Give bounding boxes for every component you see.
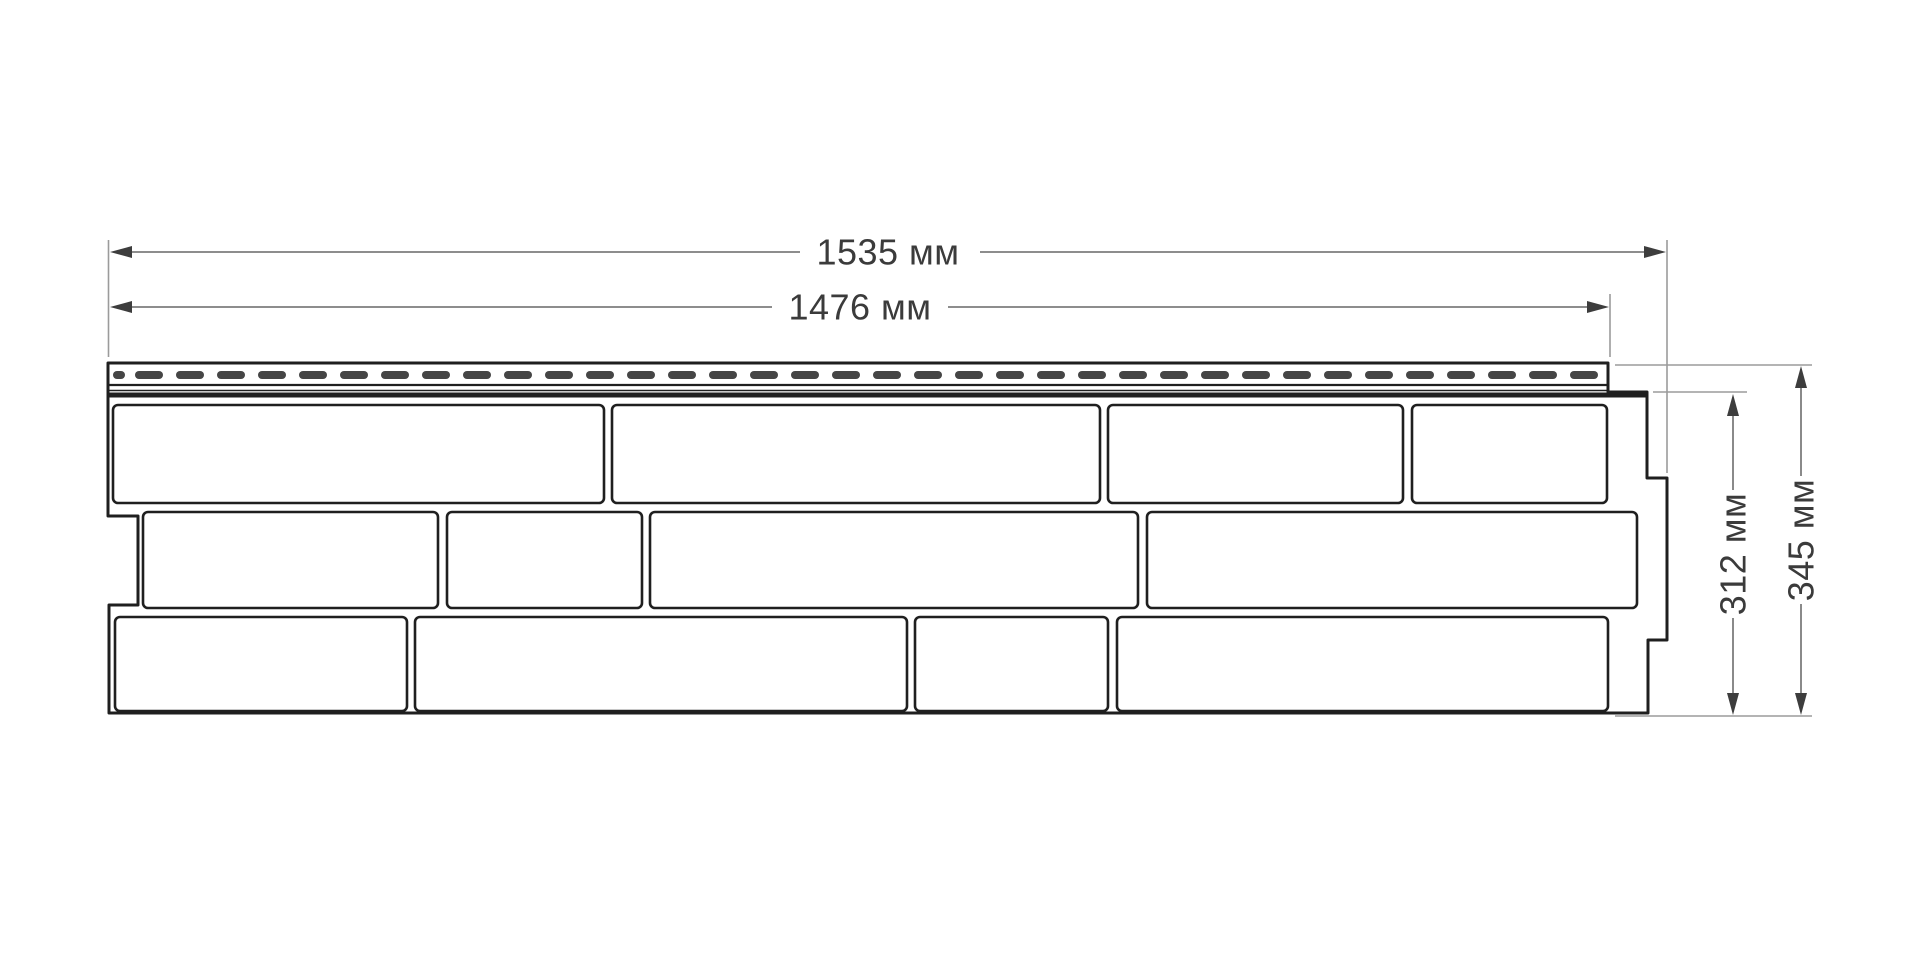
nail-slot xyxy=(1201,371,1229,379)
brick-r1-1 xyxy=(113,405,604,503)
brick-r1-4 xyxy=(1412,405,1607,503)
arrowhead-right xyxy=(1587,301,1609,313)
brick-r3-1 xyxy=(115,617,407,711)
arrowhead-left xyxy=(110,246,132,258)
nail-slot xyxy=(914,371,942,379)
nail-slot xyxy=(381,371,409,379)
nail-slot xyxy=(135,371,163,379)
facade-panel-drawing: 1535 мм 1476 мм 312 мм 345 мм xyxy=(0,0,1920,960)
dimension-total-width: 1535 мм xyxy=(110,232,1666,273)
dimension-label-useful-height: 312 мм xyxy=(1713,493,1754,616)
dimension-total-height: 345 мм xyxy=(1781,366,1822,715)
nail-slot xyxy=(1447,371,1475,379)
nail-slot xyxy=(1324,371,1352,379)
nail-slot xyxy=(668,371,696,379)
nail-slot xyxy=(1119,371,1147,379)
arrowhead-right xyxy=(1644,246,1666,258)
nail-slot xyxy=(955,371,983,379)
nail-slot xyxy=(422,371,450,379)
brick-r2-2 xyxy=(447,512,642,608)
brick-r3-3 xyxy=(915,617,1108,711)
brick-r2-3 xyxy=(650,512,1138,608)
nail-slot xyxy=(873,371,901,379)
nail-slot xyxy=(176,371,204,379)
nail-slot xyxy=(1570,371,1598,379)
nail-slot xyxy=(1242,371,1270,379)
nail-slot xyxy=(217,371,245,379)
nail-slot xyxy=(545,371,573,379)
nail-slot xyxy=(463,371,491,379)
dimension-label-total-width: 1535 мм xyxy=(816,232,959,273)
panel xyxy=(108,363,1667,713)
dimension-label-useful-width: 1476 мм xyxy=(788,287,931,328)
nail-slot xyxy=(791,371,819,379)
nail-slot xyxy=(832,371,860,379)
panel-top-shelf-band xyxy=(108,393,1647,398)
nail-slot xyxy=(1365,371,1393,379)
nail-slot xyxy=(1283,371,1311,379)
arrowhead-down xyxy=(1795,693,1807,715)
dimension-label-total-height: 345 мм xyxy=(1781,479,1822,602)
brick-r3-2 xyxy=(415,617,907,711)
nail-slot xyxy=(113,371,125,379)
nail-slot xyxy=(709,371,737,379)
brick-row-3 xyxy=(115,617,1608,711)
nail-slot xyxy=(340,371,368,379)
nail-slot xyxy=(1529,371,1557,379)
brick-r1-2 xyxy=(612,405,1100,503)
nail-slot xyxy=(750,371,778,379)
nail-slot xyxy=(996,371,1024,379)
arrowhead-up xyxy=(1795,366,1807,388)
brick-row-2 xyxy=(143,512,1637,608)
brick-r1-3 xyxy=(1108,405,1403,503)
nail-slot xyxy=(586,371,614,379)
arrowhead-left xyxy=(110,301,132,313)
brick-row-1 xyxy=(113,405,1607,503)
dimension-useful-height: 312 мм xyxy=(1713,394,1754,715)
nail-slot xyxy=(299,371,327,379)
brick-r2-4 xyxy=(1147,512,1637,608)
nail-slot xyxy=(1078,371,1106,379)
nail-slot xyxy=(1488,371,1516,379)
nail-slot xyxy=(1160,371,1188,379)
brick-r3-4 xyxy=(1117,617,1608,711)
nail-slot xyxy=(1406,371,1434,379)
nail-slot xyxy=(504,371,532,379)
nail-slot xyxy=(627,371,655,379)
arrowhead-up xyxy=(1727,394,1739,416)
arrowhead-down xyxy=(1727,693,1739,715)
drawing-canvas: 1535 мм 1476 мм 312 мм 345 мм xyxy=(0,0,1920,960)
nail-slot xyxy=(258,371,286,379)
brick-r2-1 xyxy=(143,512,438,608)
dimension-useful-width: 1476 мм xyxy=(110,287,1609,328)
nail-slot xyxy=(1037,371,1065,379)
